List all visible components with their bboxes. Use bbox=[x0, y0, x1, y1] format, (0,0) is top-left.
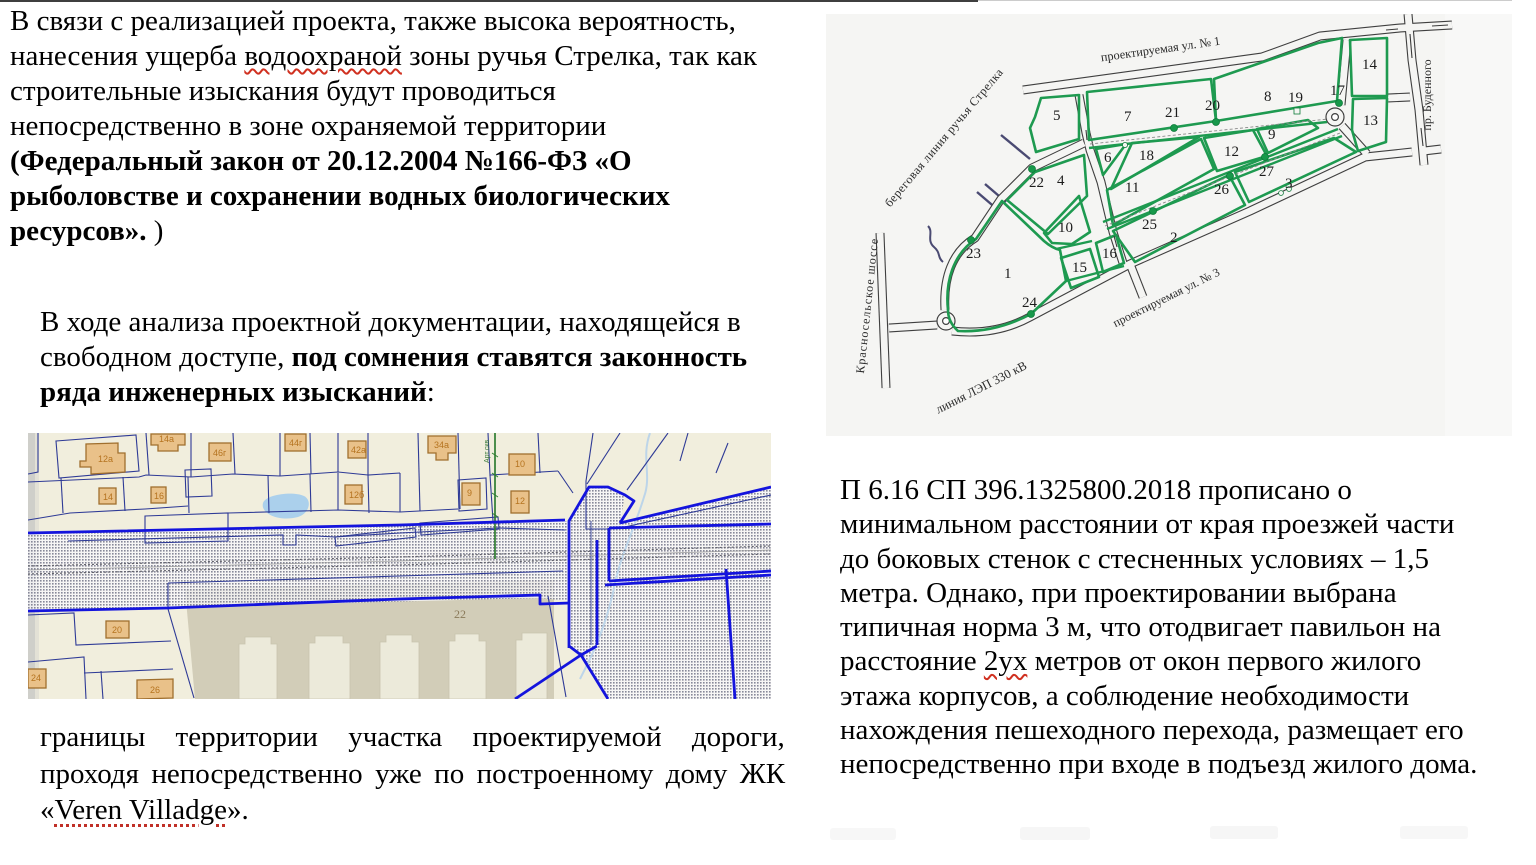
svg-text:34a: 34a bbox=[434, 440, 449, 450]
svg-text:19: 19 bbox=[1288, 90, 1303, 106]
svg-text:12б: 12б bbox=[349, 490, 364, 500]
svg-text:10: 10 bbox=[1058, 220, 1073, 236]
svg-text:44г: 44г bbox=[289, 438, 303, 448]
svg-text:46г: 46г bbox=[213, 448, 227, 458]
svg-text:12: 12 bbox=[515, 496, 525, 506]
svg-text:6: 6 bbox=[1104, 150, 1112, 166]
svg-text:16: 16 bbox=[1102, 246, 1118, 262]
svg-text:пр. Буденного: пр. Буденного bbox=[1420, 59, 1434, 130]
svg-text:2: 2 bbox=[1170, 230, 1178, 246]
svg-text:14: 14 bbox=[1362, 57, 1378, 73]
svg-text:14a: 14a bbox=[159, 434, 174, 444]
svg-text:21: 21 bbox=[1165, 105, 1180, 121]
svg-text:24: 24 bbox=[31, 673, 41, 683]
svg-text:25: 25 bbox=[1142, 217, 1157, 233]
svg-text:23: 23 bbox=[966, 246, 981, 262]
svg-text:9: 9 bbox=[467, 488, 472, 498]
svg-text:27: 27 bbox=[1259, 164, 1275, 180]
svg-text:10: 10 bbox=[515, 459, 525, 469]
svg-text:24: 24 bbox=[1022, 295, 1038, 311]
svg-text:26: 26 bbox=[150, 685, 160, 695]
svg-text:16: 16 bbox=[154, 491, 164, 501]
svg-text:14: 14 bbox=[103, 492, 113, 502]
svg-text:17: 17 bbox=[1330, 83, 1346, 99]
svg-text:20: 20 bbox=[1205, 98, 1220, 114]
svg-text:20: 20 bbox=[112, 625, 122, 635]
svg-text:26: 26 bbox=[1214, 182, 1230, 198]
svg-text:5: 5 bbox=[1053, 108, 1061, 124]
svg-text:1: 1 bbox=[1004, 266, 1012, 282]
svg-text:Арт.скв: Арт.скв bbox=[484, 440, 491, 463]
svg-text:15: 15 bbox=[1072, 260, 1087, 276]
svg-text:22: 22 bbox=[454, 607, 466, 621]
svg-text:9: 9 bbox=[1268, 127, 1276, 143]
svg-text:7: 7 bbox=[1124, 109, 1132, 125]
svg-text:4: 4 bbox=[1057, 173, 1065, 189]
svg-text:12a: 12a bbox=[98, 454, 113, 464]
svg-text:12: 12 bbox=[1224, 144, 1239, 160]
svg-text:8: 8 bbox=[1264, 89, 1272, 105]
svg-text:42а: 42а bbox=[351, 445, 366, 455]
svg-text:3: 3 bbox=[1285, 176, 1293, 192]
svg-text:22: 22 bbox=[1029, 175, 1044, 191]
svg-text:13: 13 bbox=[1363, 113, 1378, 129]
svg-text:11: 11 bbox=[1125, 180, 1139, 196]
svg-text:18: 18 bbox=[1139, 148, 1154, 164]
